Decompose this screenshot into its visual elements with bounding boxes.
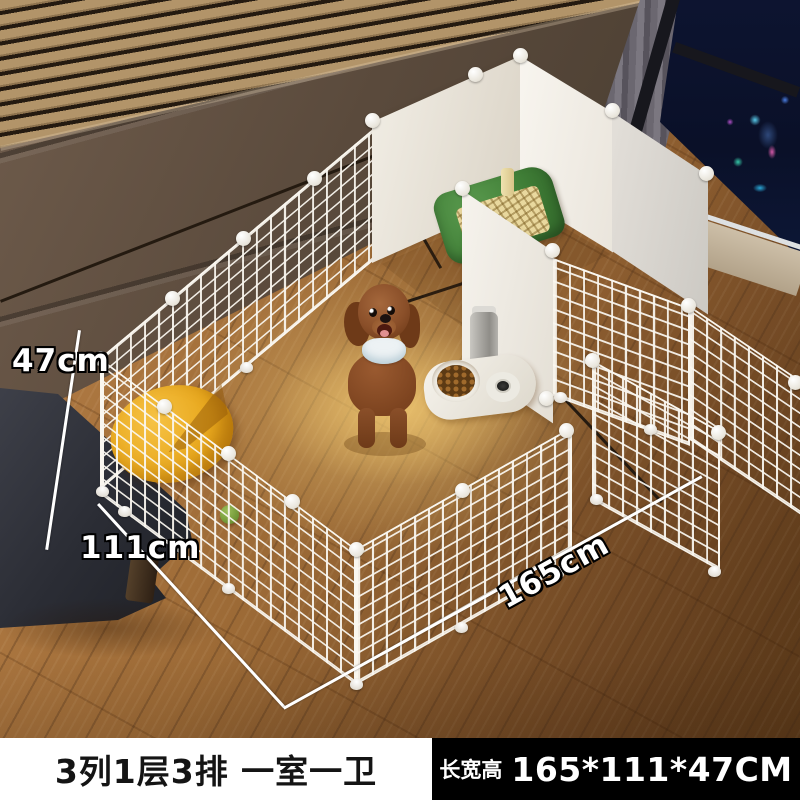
kibble-food — [437, 365, 475, 397]
ball-connector — [545, 243, 560, 258]
dog-tongue — [380, 330, 389, 337]
caption-layout-text: 3列1层3排 一室一卫 — [0, 738, 432, 800]
ball-connector — [157, 399, 172, 414]
ball-connector — [455, 181, 470, 196]
ball-connector — [349, 542, 364, 557]
dog-shadow — [344, 432, 426, 456]
ball-connector — [513, 48, 528, 63]
ball-connector — [455, 483, 470, 498]
foot-connector — [118, 506, 131, 517]
toy-poodle-dog — [336, 280, 432, 460]
product-photo-pet-playpen: 47cm 111cm 165cm 3列1层3排 一室一卫 长宽高 165*111… — [0, 0, 800, 800]
foot-connector — [240, 362, 253, 373]
ball-connector — [711, 425, 726, 440]
ball-connector — [165, 291, 180, 306]
foot-connector — [455, 622, 468, 633]
dog-front-leg — [390, 408, 407, 448]
caption-size-bar: 长宽高 165*111*47CM — [432, 738, 800, 800]
pet-feeder — [424, 306, 544, 436]
water-bowl-opening — [495, 379, 511, 393]
ball-connector — [539, 391, 554, 406]
dimension-label-height: 47cm — [12, 346, 110, 377]
dog-lace-bib — [362, 338, 406, 364]
ball-connector — [585, 353, 600, 368]
foot-connector — [708, 566, 721, 577]
ball-connector — [236, 231, 251, 246]
ball-connector — [559, 423, 574, 438]
foot-connector — [222, 583, 235, 594]
ball-connector — [468, 67, 483, 82]
foot-connector — [554, 392, 567, 403]
ball-connector — [681, 298, 696, 313]
caption-size-value: 165*111*47CM — [511, 750, 792, 789]
foot-connector — [350, 679, 363, 690]
ball-connector — [221, 446, 236, 461]
dimension-label-depth: 111cm — [80, 533, 200, 564]
ball-connector — [285, 494, 300, 509]
ball-connector — [699, 166, 714, 181]
foot-connector — [96, 486, 109, 497]
litter-tray-post — [501, 168, 514, 196]
sofa-shadow — [0, 598, 215, 658]
foot-connector — [644, 424, 657, 435]
ball-connector — [307, 171, 322, 186]
dog-nose — [380, 314, 391, 323]
foot-connector — [590, 494, 603, 505]
caption-size-prefix: 长宽高 — [439, 754, 502, 784]
dog-eye — [369, 308, 377, 317]
ball-connector — [605, 103, 620, 118]
dog-front-leg — [358, 408, 375, 448]
ball-connector — [788, 375, 800, 390]
ball-connector — [365, 113, 380, 128]
